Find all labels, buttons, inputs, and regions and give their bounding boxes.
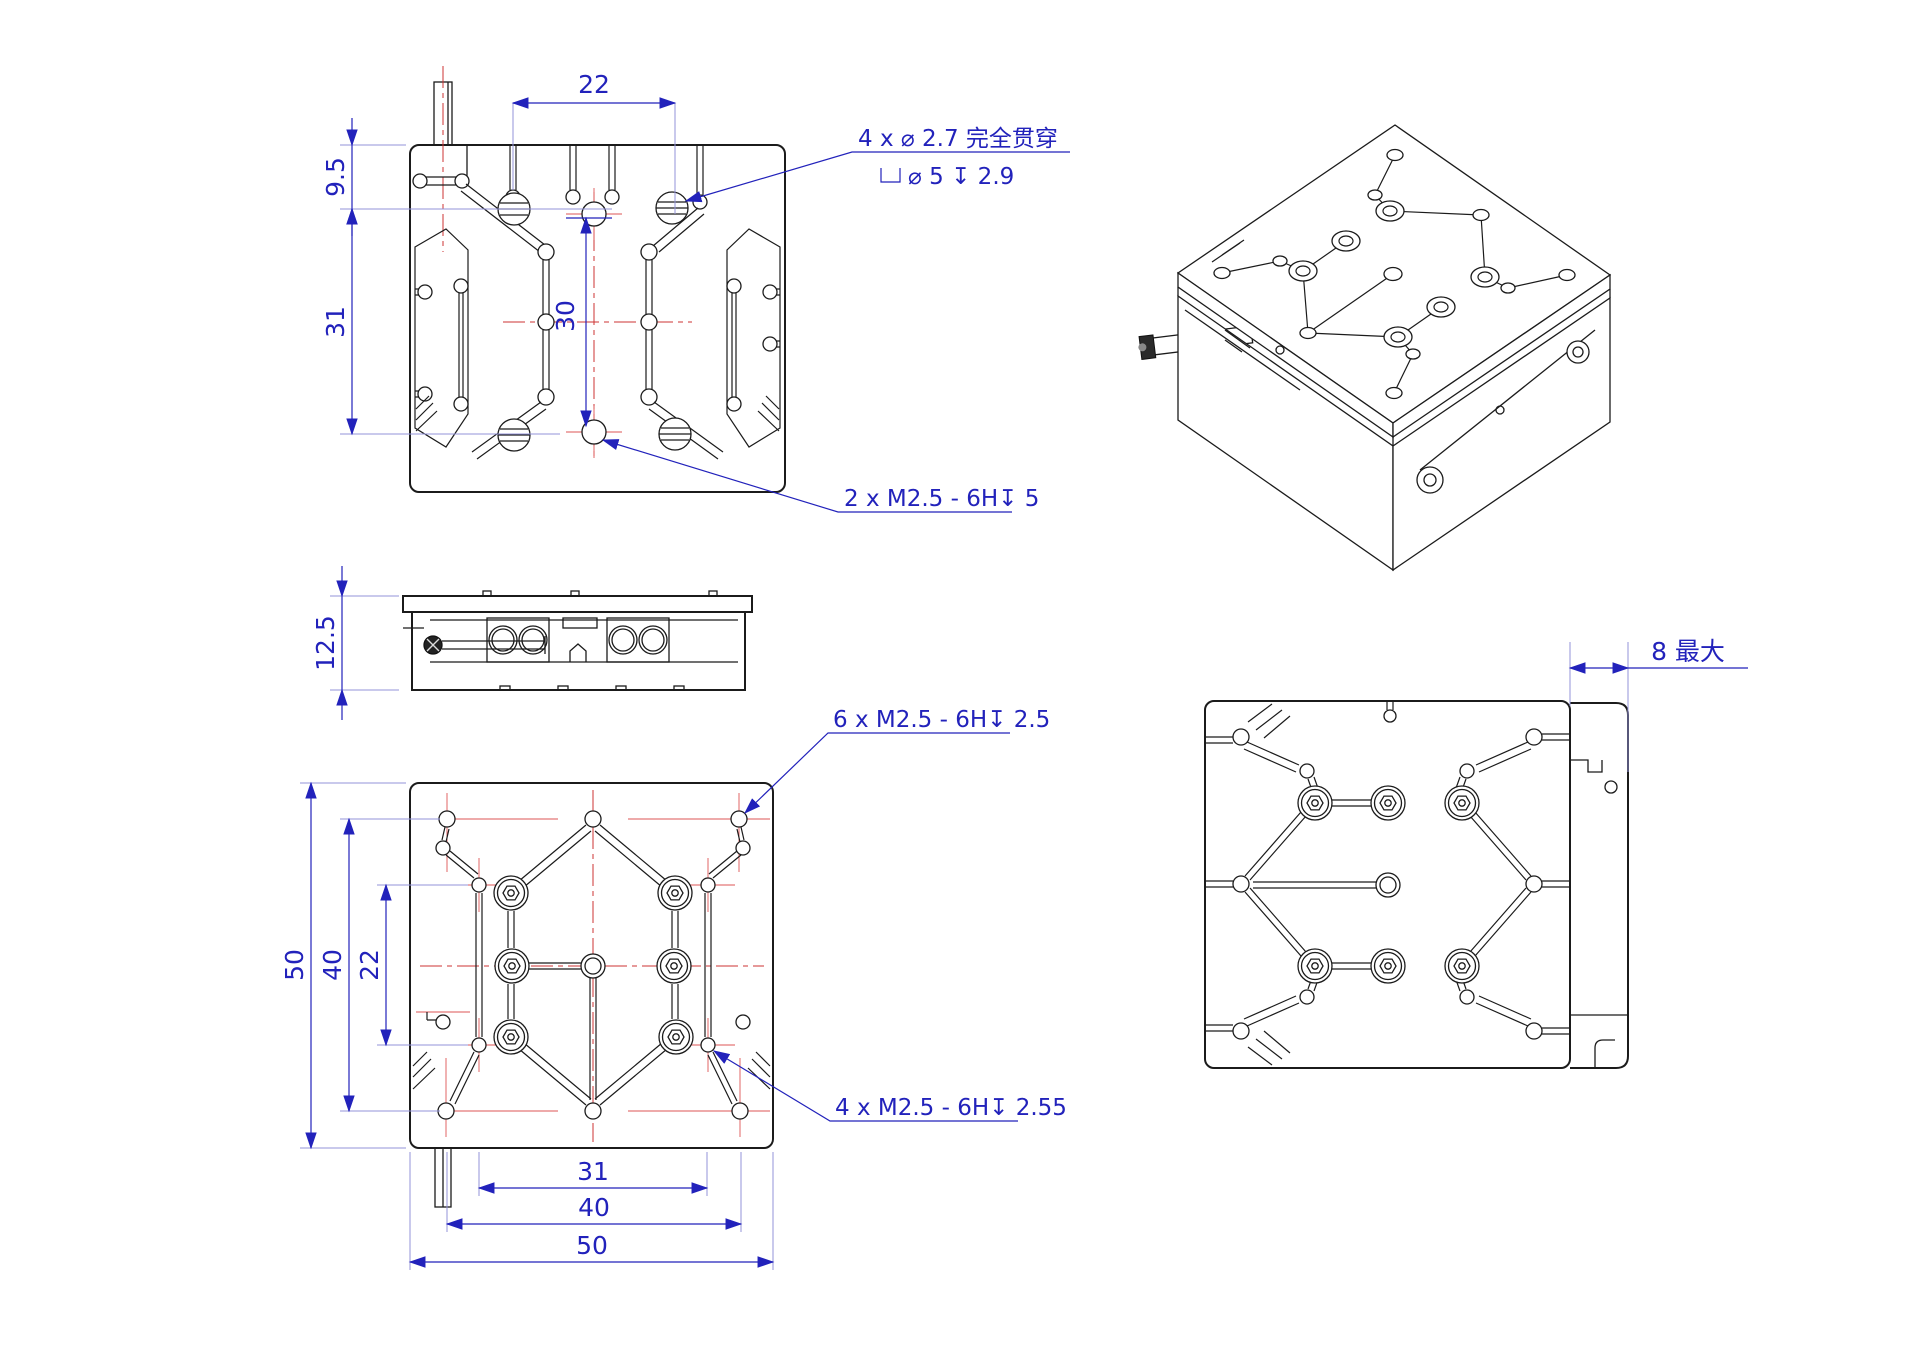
bottom-view: 50 40 22 31 40 [280, 707, 1067, 1270]
dim-travel-label: 8 最大 [1651, 637, 1725, 666]
dimension-bottom-31: 31 [479, 1152, 707, 1196]
socket-screw [1371, 786, 1405, 820]
center-hole [581, 954, 605, 978]
pivot-hole [436, 1015, 450, 1029]
tapped-hole [1233, 876, 1249, 892]
tapped-hole [439, 811, 455, 827]
side-view: 12.5 [311, 566, 752, 720]
iso-view [1137, 125, 1610, 570]
dim-50-bottom-label: 50 [576, 1231, 608, 1260]
dim-22-label: 22 [578, 70, 610, 99]
socket-screw [1298, 949, 1332, 983]
tapped-hole [585, 811, 601, 827]
socket-screw [658, 876, 692, 910]
dimension-bottom-left-22: 22 [355, 885, 468, 1045]
tapped-hole [585, 1103, 601, 1119]
drawing-sheet: 22 9.5 31 30 4 x ⌀ 2.7 完全贯穿 ⌀ 5 ↧ [0, 0, 1920, 1357]
dimension-travel: 8 最大 [1570, 637, 1748, 772]
top-view: 22 9.5 31 30 4 x ⌀ 2.7 完全贯穿 ⌀ 5 ↧ [321, 66, 1070, 512]
pivot-hole [1460, 990, 1474, 1004]
travel-view: 8 最大 [1205, 637, 1748, 1068]
note-tap-six: 6 x M2.5 - 6H↧ 2.5 [745, 707, 1050, 813]
socket-screw [1371, 949, 1405, 983]
note-counterbore-holes: 4 x ⌀ 2.7 完全贯穿 ⌀ 5 ↧ 2.9 [686, 126, 1070, 201]
note-tap-four-label: 4 x M2.5 - 6H↧ 2.55 [835, 1095, 1067, 1121]
dim-9p5-label: 9.5 [321, 157, 350, 197]
note-tap-label: 2 x M2.5 - 6H↧ 5 [844, 486, 1039, 512]
tapped-hole [732, 1103, 748, 1119]
top-view-tab [434, 82, 467, 180]
dim-31-label: 31 [321, 306, 350, 338]
tapped-hole [1526, 1023, 1542, 1039]
dim-22-left-label: 22 [355, 949, 384, 981]
dim-12p5-label: 12.5 [311, 615, 340, 671]
travel-view-extension [1570, 703, 1628, 1068]
pivot-hole [1300, 764, 1314, 778]
socket-screw [494, 1020, 528, 1054]
note-tap-top: 2 x M2.5 - 6H↧ 5 [603, 440, 1039, 512]
pivot-hole [701, 1038, 715, 1052]
pivot-hole [1460, 764, 1474, 778]
pivot-hole [736, 1015, 750, 1029]
slotted-screw [656, 192, 688, 224]
tapped-hole [1526, 876, 1542, 892]
tapped-hole [1233, 729, 1249, 745]
socket-screw [659, 1020, 693, 1054]
tapped-hole [438, 1103, 454, 1119]
pivot-hole [472, 878, 486, 892]
note-holes-line2: ⌀ 5 ↧ 2.9 [908, 164, 1014, 190]
socket-screw [1445, 786, 1479, 820]
tapped-hole [1233, 1023, 1249, 1039]
dimension-side-height: 12.5 [311, 566, 399, 720]
dim-30-label: 30 [551, 300, 580, 332]
side-view-base [412, 612, 745, 690]
pivot-hole [436, 841, 450, 855]
slotted-screw [659, 418, 691, 450]
counterbore-icon [881, 168, 900, 182]
pivot-hole [1384, 710, 1396, 722]
note-tap-six-label: 6 x M2.5 - 6H↧ 2.5 [833, 707, 1050, 733]
center-hole [1376, 873, 1400, 897]
pivot-hole [1300, 990, 1314, 1004]
socket-screw [1445, 949, 1479, 983]
drawing-canvas: 22 9.5 31 30 4 x ⌀ 2.7 完全贯穿 ⌀ 5 ↧ [0, 0, 1920, 1357]
dim-40-bottom-label: 40 [578, 1193, 610, 1222]
top-view-left-pocket [415, 229, 468, 447]
pivot-hole [701, 878, 715, 892]
tapped-hole [1526, 729, 1542, 745]
socket-screw [657, 949, 691, 983]
side-view-details [403, 591, 738, 690]
dim-31-bottom-label: 31 [577, 1157, 609, 1186]
dim-50-left-label: 50 [280, 949, 309, 981]
travel-extension-details [1570, 760, 1628, 1068]
note-holes-line1: 4 x ⌀ 2.7 完全贯穿 [858, 126, 1058, 152]
slotted-screw [498, 419, 530, 451]
side-view-top-plate [403, 596, 752, 612]
socket-screw [495, 949, 529, 983]
dim-40-left-label: 40 [318, 949, 347, 981]
tapped-hole [731, 811, 747, 827]
socket-screw [494, 876, 528, 910]
top-view-right-pocket [727, 229, 780, 447]
pivot-hole [472, 1038, 486, 1052]
socket-screw [1298, 786, 1332, 820]
pivot-hole [736, 841, 750, 855]
